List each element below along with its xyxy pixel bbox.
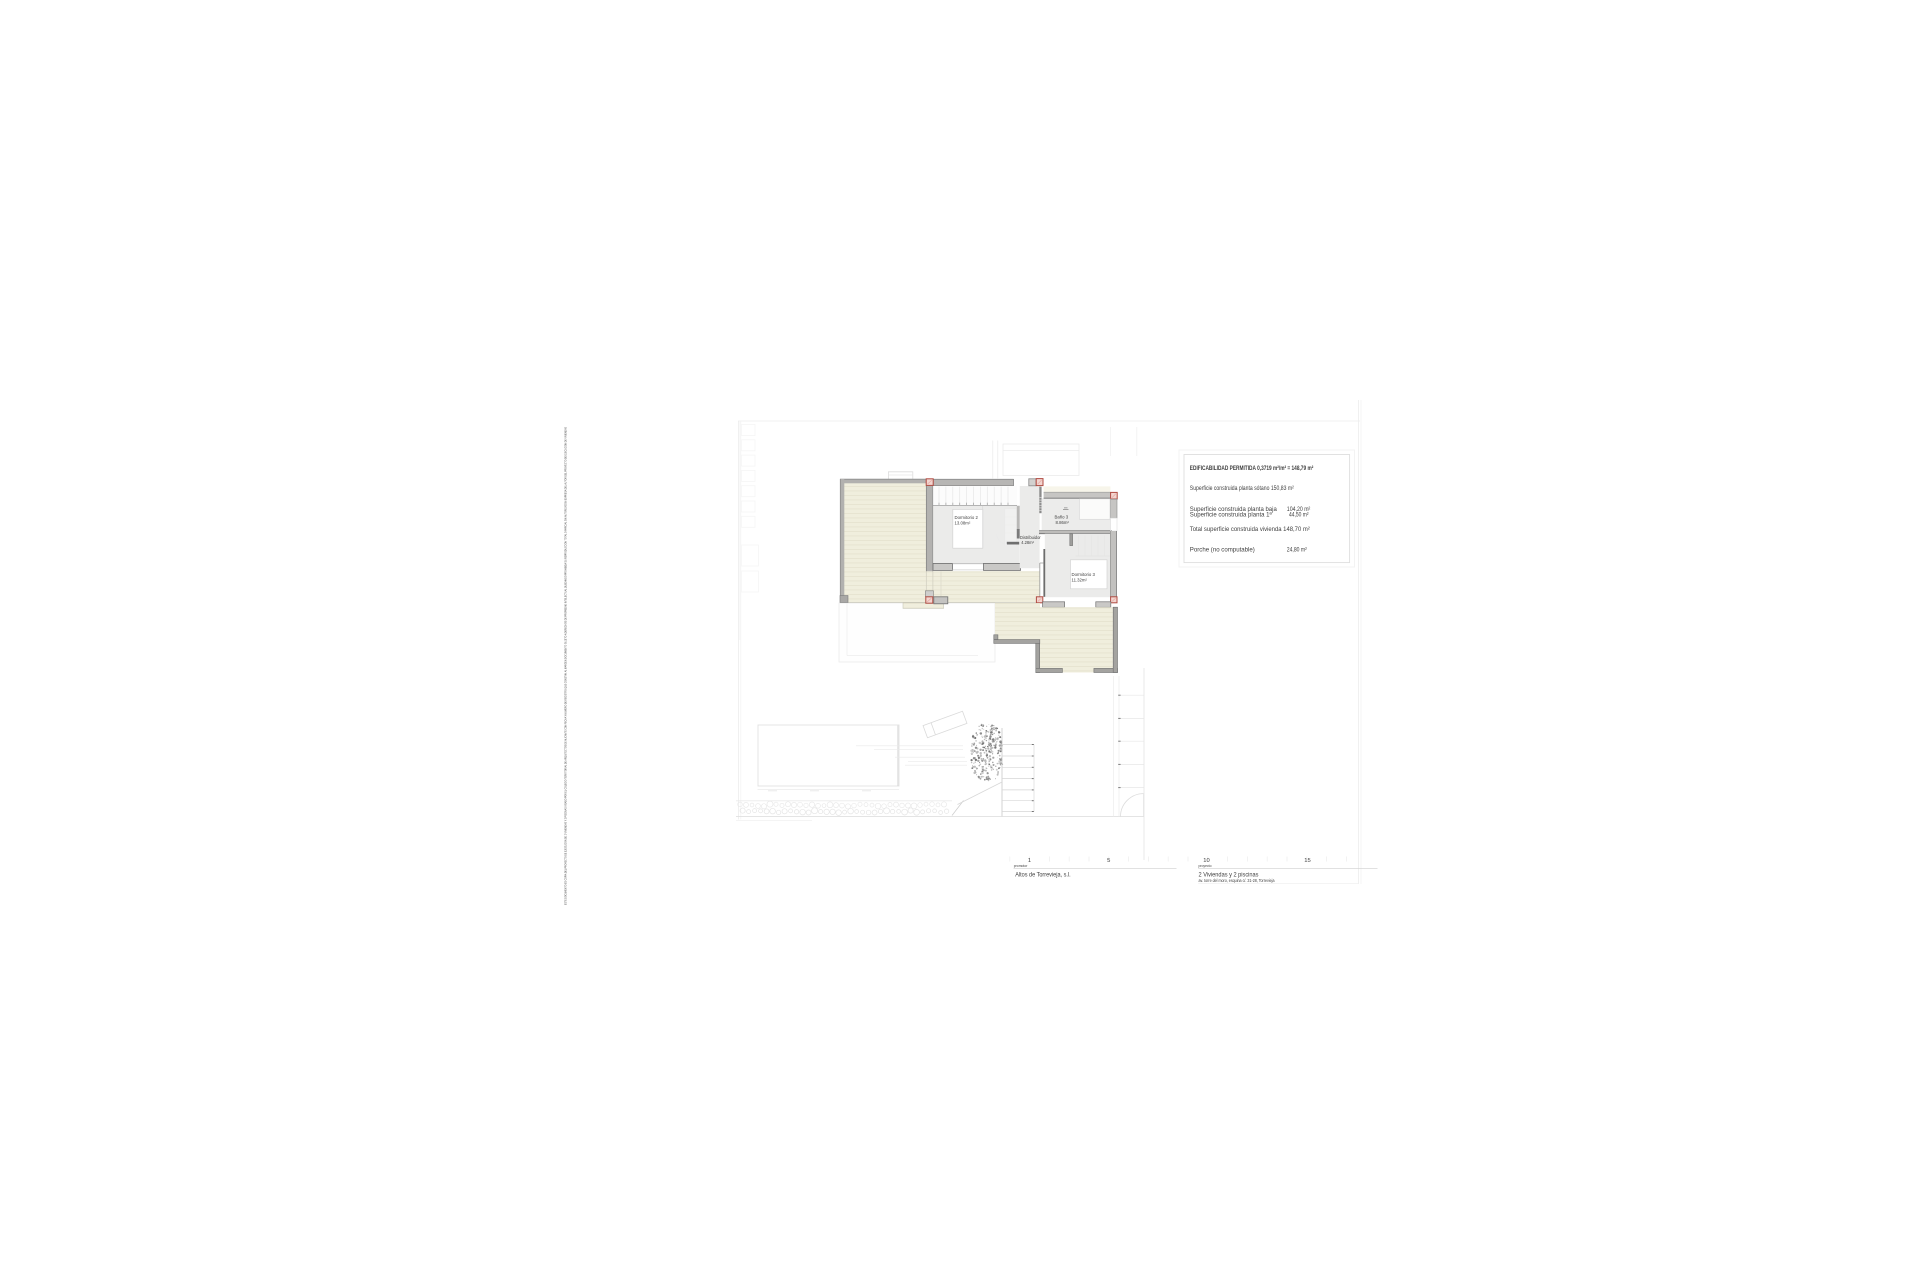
svg-text:1: 1 [1028, 858, 1031, 864]
svg-text:24,80 m²: 24,80 m² [1287, 546, 1307, 553]
svg-text:ESTE DOCUMENTO ES COPIA DEL PR: ESTE DOCUMENTO ES COPIA DEL PROYECTO DE … [565, 427, 568, 905]
svg-text:Altos de Torrevieja, s.l.: Altos de Torrevieja, s.l. [1015, 872, 1071, 879]
svg-text:Superficie construida planta 1: Superficie construida planta 1ª [1190, 512, 1273, 519]
svg-text:Baño 3: Baño 3 [1055, 515, 1069, 520]
svg-text:4.28m²: 4.28m² [1021, 540, 1034, 545]
svg-text:Porche (no computable): Porche (no computable) [1190, 546, 1255, 553]
svg-text:44,50 m²: 44,50 m² [1289, 512, 1309, 519]
svg-text:13.08m²: 13.08m² [955, 521, 971, 526]
svg-text:Superficie construida planta s: Superficie construida planta sótano 150,… [1190, 485, 1294, 492]
svg-text:Distribuidor: Distribuidor [1020, 535, 1041, 540]
svg-text:8.86m²: 8.86m² [1056, 520, 1070, 525]
svg-text:proyecto: proyecto [1199, 864, 1212, 868]
svg-text:EDIFICABILIDAD PERMITIDA 0,371: EDIFICABILIDAD PERMITIDA 0,3719 m²/m² = … [1190, 465, 1314, 472]
svg-text:5: 5 [1107, 858, 1110, 864]
svg-text:15: 15 [1304, 858, 1310, 864]
svg-text:Dormitorio 3: Dormitorio 3 [1072, 572, 1096, 577]
svg-text:Dormitorio 2: Dormitorio 2 [955, 515, 979, 520]
svg-text:11.32m²: 11.32m² [1072, 578, 1088, 583]
svg-text:av. torre del moro, esquina c/: av. torre del moro, esquina c/. 31-28, T… [1199, 878, 1275, 883]
svg-text:promotor: promotor [1014, 864, 1028, 868]
svg-text:Total superficie construida vi: Total superficie construida vivienda 148… [1190, 526, 1310, 533]
